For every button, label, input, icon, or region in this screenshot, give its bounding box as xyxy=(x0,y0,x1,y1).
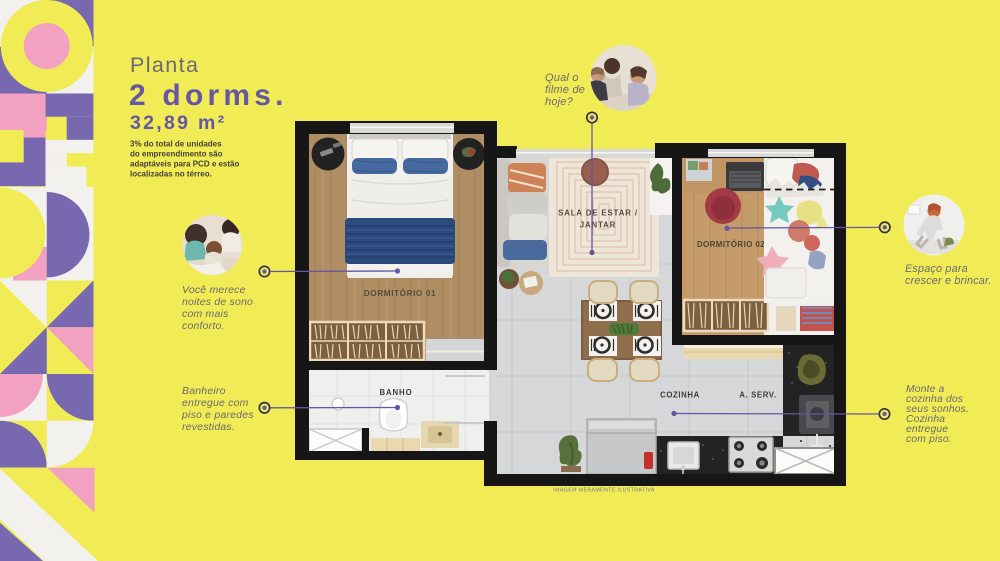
svg-text:filme de: filme de xyxy=(545,84,585,96)
svg-text:noites de sono: noites de sono xyxy=(182,296,253,308)
svg-text:adaptáveis para PCD e estão: adaptáveis para PCD e estão xyxy=(130,160,239,169)
svg-text:Planta: Planta xyxy=(130,53,199,77)
svg-text:do empreendimento são: do empreendimento são xyxy=(130,150,223,159)
svg-text:SALA DE ESTAR /: SALA DE ESTAR / xyxy=(558,209,638,218)
svg-text:com piso.: com piso. xyxy=(906,434,952,445)
svg-text:3% do total de unidades: 3% do total de unidades xyxy=(130,140,222,149)
svg-text:com mais: com mais xyxy=(182,308,229,320)
svg-text:revestidas.: revestidas. xyxy=(182,421,235,433)
svg-text:Qual o: Qual o xyxy=(545,72,579,84)
svg-text:2 dorms.: 2 dorms. xyxy=(129,79,288,112)
svg-text:Espaço para: Espaço para xyxy=(905,263,968,275)
svg-text:conforto.: conforto. xyxy=(182,320,225,332)
svg-text:DORMITÓRIO 02: DORMITÓRIO 02 xyxy=(697,240,765,249)
svg-text:COZINHA: COZINHA xyxy=(660,391,700,400)
svg-text:Banheiro: Banheiro xyxy=(182,385,226,397)
svg-text:32,89 m²: 32,89 m² xyxy=(130,112,226,134)
svg-text:JANTAR: JANTAR xyxy=(580,221,616,230)
svg-text:localizadas no térreo.: localizadas no térreo. xyxy=(130,170,212,179)
svg-text:crescer e brincar.: crescer e brincar. xyxy=(905,275,992,287)
svg-text:A. SERV.: A. SERV. xyxy=(739,391,776,400)
svg-text:DORMITÓRIO 01: DORMITÓRIO 01 xyxy=(364,287,436,298)
svg-text:piso e paredes: piso e paredes xyxy=(181,409,254,421)
svg-text:IMAGEM MERAMENTE ILUSTRATIVA: IMAGEM MERAMENTE ILUSTRATIVA xyxy=(553,488,655,494)
svg-text:hoje?: hoje? xyxy=(545,96,574,108)
svg-text:entregue com: entregue com xyxy=(182,397,249,409)
svg-text:BANHO: BANHO xyxy=(379,388,412,397)
svg-text:Você merece: Você merece xyxy=(182,284,246,296)
